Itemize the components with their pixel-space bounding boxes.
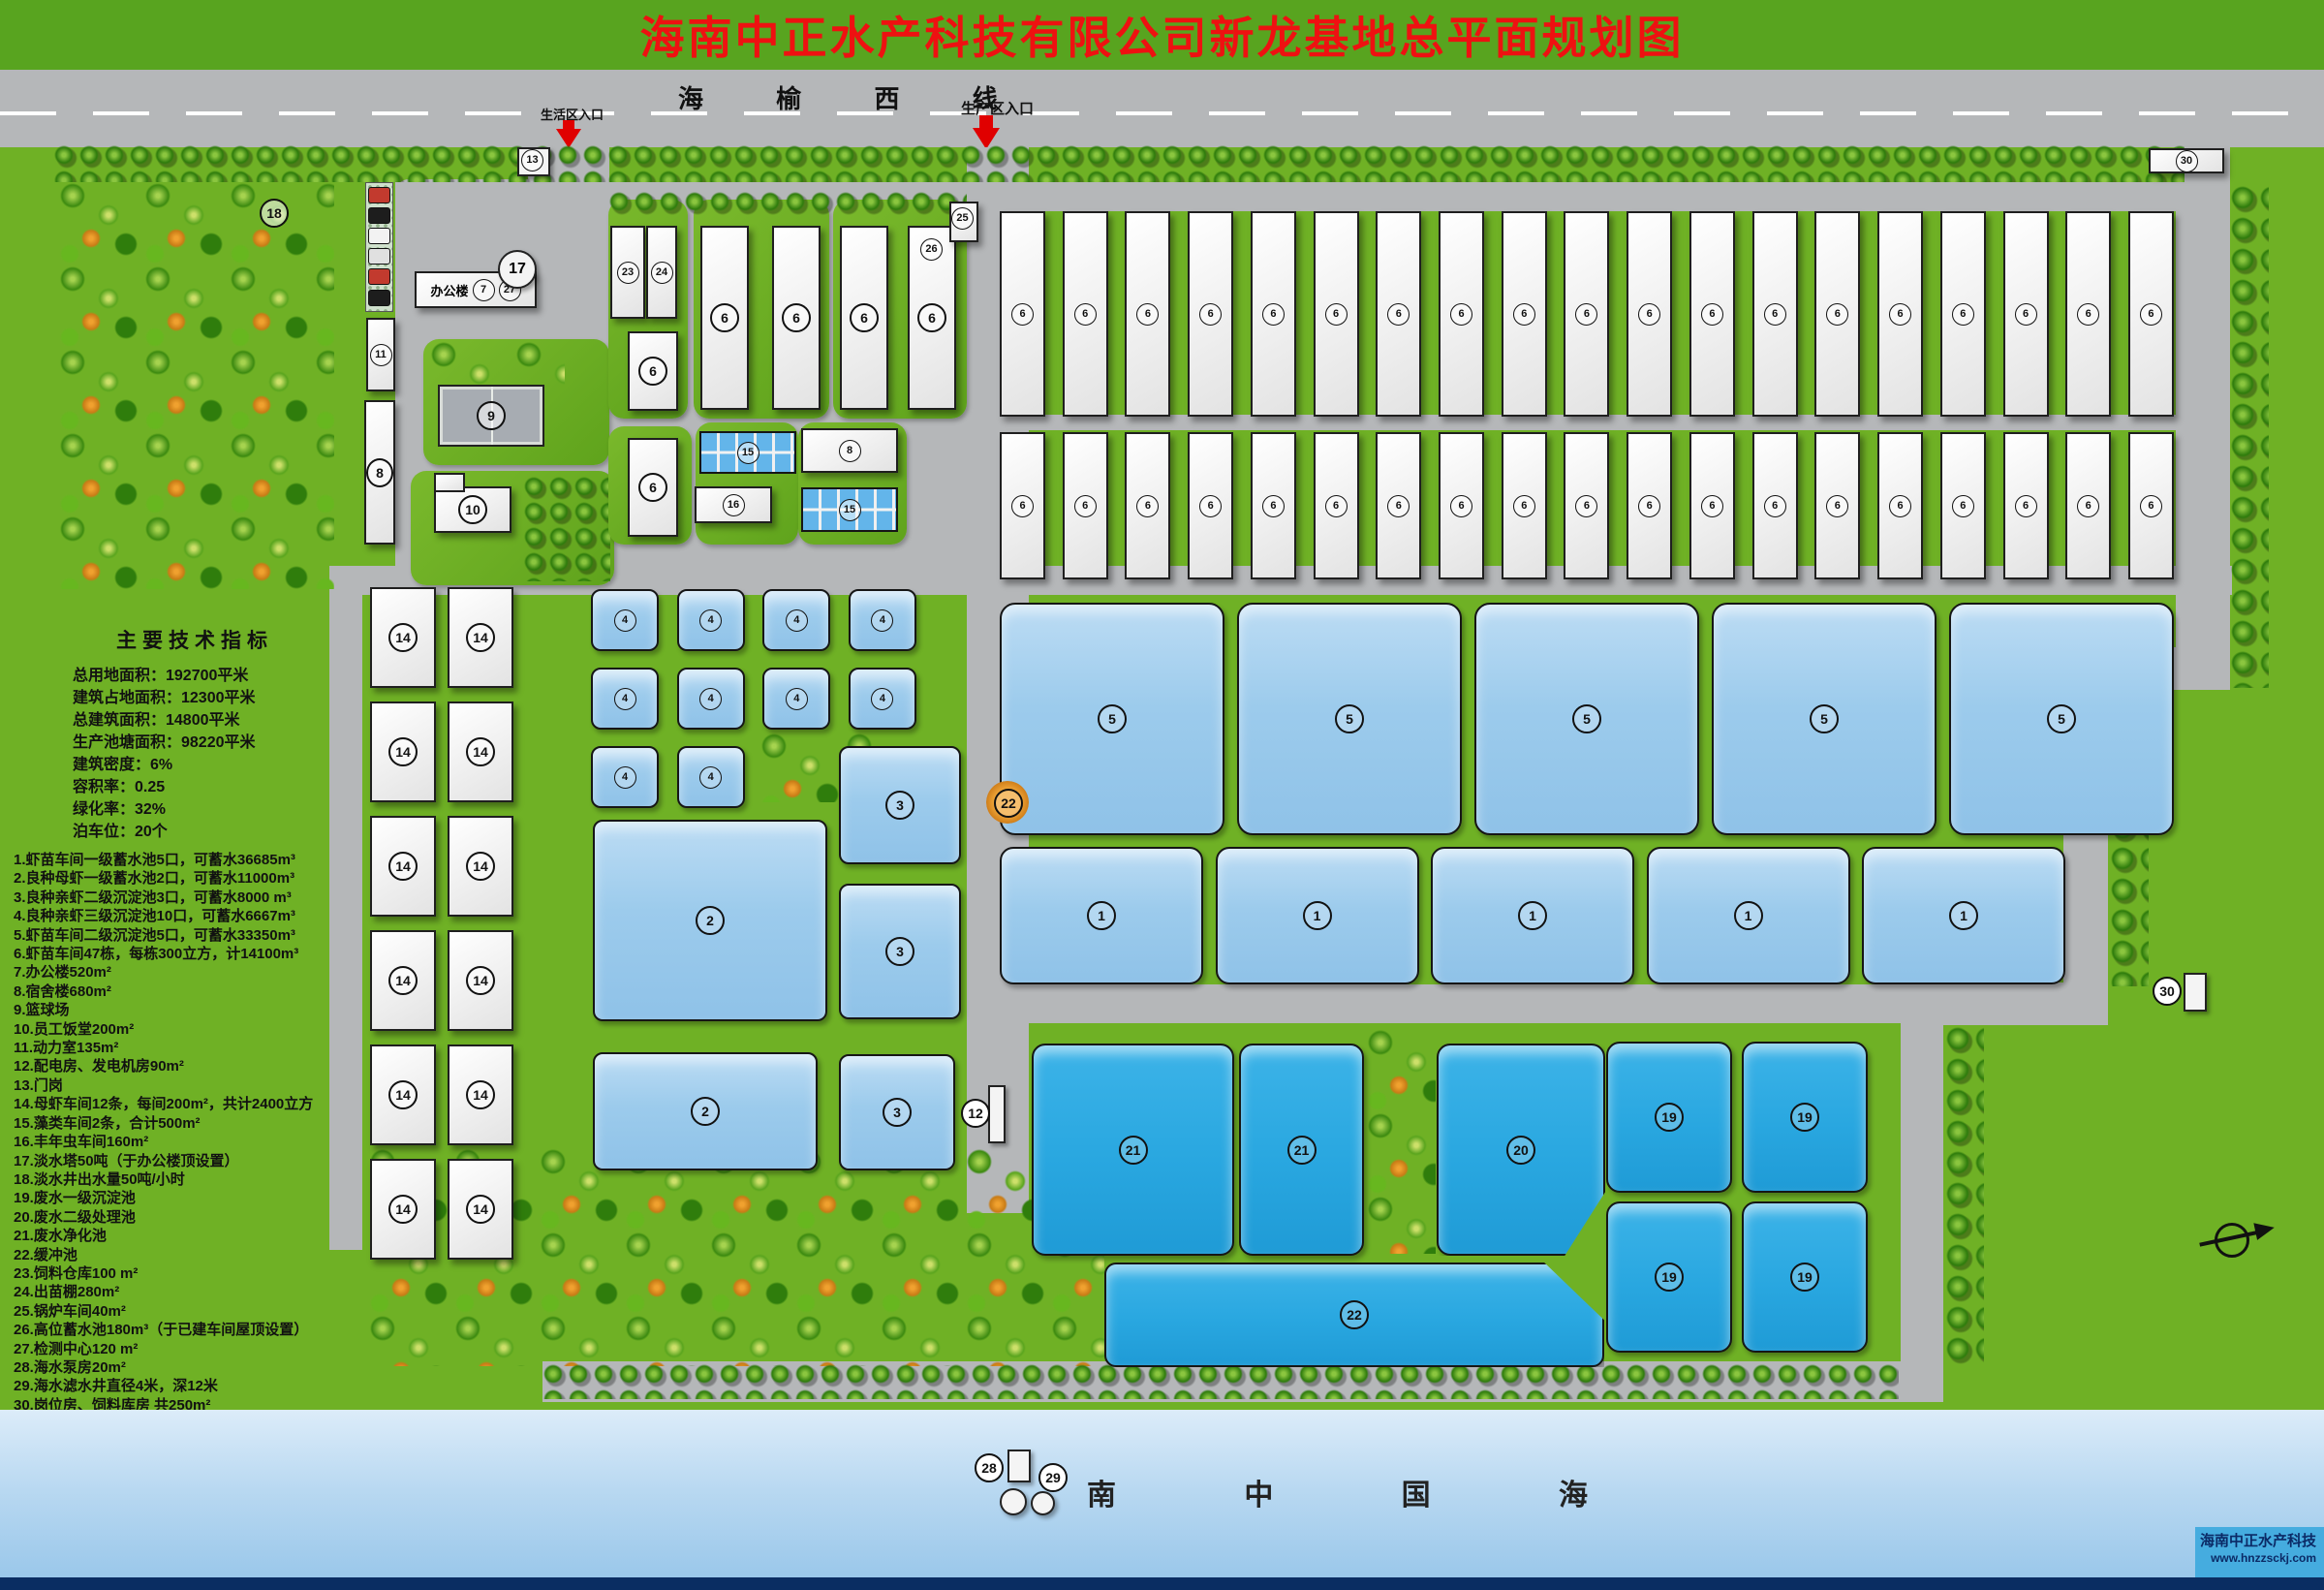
text-line: 泊车位：20个	[73, 821, 256, 843]
workshop-marker: 6	[1325, 495, 1348, 517]
pond-marker: 1	[1949, 901, 1978, 930]
pond-marker: 19	[1790, 1103, 1819, 1132]
workshop-label: 6	[1772, 501, 1778, 512]
workshop-marker: 6	[638, 473, 667, 502]
indicators-block: 总用地面积：192700平米建筑占地面积：12300平米总建筑面积：14800平…	[73, 665, 256, 843]
pond-marker: 4	[614, 688, 636, 710]
elevated-tank-label: 26	[925, 244, 937, 255]
pond-marker: 3	[885, 937, 914, 966]
workshop-label: 6	[792, 311, 800, 325]
water-tower: 17	[498, 250, 537, 289]
workshop-6f: 6	[628, 438, 678, 537]
text-line: 9.篮球场	[14, 1001, 313, 1019]
settling-pond-4: 4	[762, 668, 830, 730]
workshop-marker: 6	[1575, 303, 1597, 326]
workshop-marker: 6	[1325, 303, 1348, 326]
gate-label: 13	[526, 155, 538, 166]
workshop-label: 6	[1082, 309, 1088, 320]
settling-pond-4: 4	[677, 589, 745, 651]
highway-centerline	[0, 111, 2324, 115]
workshop-building: 6	[2128, 432, 2174, 579]
production-entrance-label: 生产区入口	[961, 98, 1034, 118]
workshop-marker: 6	[638, 357, 667, 386]
text-line: 11.动力室135m²	[14, 1039, 313, 1057]
post-house: 30	[2149, 148, 2224, 173]
mother-shrimp-label: 14	[473, 974, 488, 987]
workshop-marker: 6	[1764, 303, 1786, 326]
text-line: 8.宿舍楼680m²	[14, 982, 313, 1001]
workshop-marker: 6	[1136, 495, 1159, 517]
text-line: 28.海水泵房20m²	[14, 1358, 313, 1377]
workshop-marker: 6	[1826, 303, 1848, 326]
algae-workshop-1: 15	[699, 431, 796, 474]
basketball-court: 9	[438, 385, 544, 447]
workshop-label: 6	[2086, 501, 2092, 512]
workshop-label: 6	[1898, 309, 1904, 320]
reservoir-pond-1: 1	[1000, 847, 1203, 984]
workshop-building: 6	[1752, 211, 1798, 417]
reservoir-col-2: 2 2	[593, 820, 827, 1170]
text-line: 2.良种母虾一级蓄水池2口，可蓄水11000m³	[14, 869, 313, 888]
pond-label: 1	[1098, 909, 1105, 922]
text-line: 生产池塘面积：98220平米	[73, 732, 256, 754]
mother-shrimp-marker: 14	[388, 1080, 418, 1109]
workshop-building: 6	[1814, 211, 1860, 417]
mother-shrimp-block: 14 14 14 14 14 14 14 14 14 14 14 14	[370, 587, 510, 1260]
workshop-building: 6	[1125, 211, 1170, 417]
mother-shrimp-marker: 14	[388, 852, 418, 881]
workshop-building: 6	[1502, 211, 1547, 417]
generator-label: 12	[968, 1107, 983, 1120]
workshop-marker: 6	[2077, 495, 2099, 517]
text-line: 绿化率：32%	[73, 798, 256, 821]
pond-label: 5	[1346, 712, 1353, 726]
mother-shrimp-marker: 14	[466, 966, 495, 995]
settling-pond-19: 19	[1742, 1042, 1868, 1193]
pond-label: 3	[893, 1106, 901, 1119]
algae-marker: 15	[737, 442, 759, 464]
pond-label: 20	[1513, 1143, 1529, 1157]
mother-shrimp-label: 14	[473, 859, 488, 873]
mother-shrimp-building: 14	[370, 587, 436, 688]
workshop-label: 6	[2086, 309, 2092, 320]
workshop-marker: 6	[1575, 495, 1597, 517]
workshop-marker: 6	[1764, 495, 1786, 517]
pond-marker: 4	[699, 766, 722, 789]
workshop-building: 6	[1627, 211, 1672, 417]
parking-strip	[365, 182, 393, 312]
dormitory-building: 8	[364, 400, 395, 545]
east-road-3	[1901, 982, 1943, 1402]
workshop-marker: 6	[850, 303, 879, 332]
east-road-1	[2176, 147, 2230, 690]
mother-shrimp-label: 14	[395, 631, 411, 644]
mother-shrimp-building: 14	[448, 816, 513, 917]
text-line: 29.海水滤水井直径4米，深12米	[14, 1377, 313, 1395]
workshop-label: 6	[1898, 501, 1904, 512]
pond-marker: 4	[699, 609, 722, 632]
text-line: 5.虾苗车间二级沉淀池5口，可蓄水33350m³	[14, 926, 313, 945]
pond-label: 19	[1797, 1270, 1813, 1284]
page-title: 海南中正水产科技有限公司新龙基地总平面规划图	[0, 3, 2324, 67]
pond-label: 4	[793, 615, 799, 626]
pond-marker: 3	[885, 791, 914, 820]
mother-shrimp-marker: 14	[466, 623, 495, 652]
workshop-label: 6	[1270, 309, 1276, 320]
mother-shrimp-label: 14	[395, 974, 411, 987]
workshop-6b: 6	[700, 226, 749, 410]
workshop-building: 6	[2003, 432, 2049, 579]
pond-label: 21	[1126, 1143, 1141, 1157]
text-line: 容积率：0.25	[73, 776, 256, 798]
workshop-marker: 6	[2015, 303, 2037, 326]
workshop-building: 6	[1439, 211, 1484, 417]
treatment-pond-20: 20	[1437, 1044, 1605, 1256]
water-tower-label: 17	[509, 261, 526, 278]
pond-marker: 3	[883, 1098, 912, 1127]
workshop-marker: 6	[2015, 495, 2037, 517]
feed-store-marker: 30	[2153, 977, 2182, 1006]
mother-shrimp-label: 14	[395, 745, 411, 759]
workshop-building: 6	[1314, 432, 1359, 579]
workshop-label: 6	[1960, 309, 1966, 320]
workshop-building: 6	[1814, 432, 1860, 579]
text-line: 12.配电房、发电机房90m²	[14, 1057, 313, 1076]
workshop-label: 6	[1270, 501, 1276, 512]
text-line: 14.母虾车间12条，每间200m²，共计2400立方	[14, 1095, 313, 1113]
pond-marker: 5	[1572, 704, 1601, 733]
canteen-island-trees	[523, 477, 610, 581]
car-white	[368, 228, 390, 244]
pond-marker: 22	[1340, 1300, 1369, 1329]
settling-pond-4: 4	[762, 589, 830, 651]
mother-shrimp-marker: 14	[466, 1080, 495, 1109]
workshop-label: 6	[1521, 309, 1527, 320]
workshop-label: 6	[1584, 309, 1590, 320]
pond-marker: 5	[1335, 704, 1364, 733]
text-line: 7.办公楼520m²	[14, 963, 313, 982]
mid-island-trees	[608, 192, 967, 215]
workshop-label: 6	[928, 311, 936, 325]
dormitory-marker: 8	[366, 458, 393, 487]
mother-shrimp-building: 14	[448, 930, 513, 1031]
pond-label: 2	[706, 914, 714, 927]
workshop-label: 6	[1521, 501, 1527, 512]
workshop-row-bottom: 6 6 6 6 6 6 6 6 6 6 6 6 6 6 6 6	[1000, 432, 2174, 576]
watermark-url: www.hnzzsckj.com	[2195, 1550, 2316, 1566]
workshop-building: 6	[1376, 432, 1421, 579]
site-plan: 海南中正水产科技有限公司新龙基地总平面规划图 海 榆 西 线 生活区入口 生产区…	[0, 0, 2324, 1590]
pond-label: 4	[708, 615, 714, 626]
workshop-label: 6	[1208, 501, 1214, 512]
sea-pump-label: 28	[981, 1461, 997, 1475]
algae-marker: 15	[839, 499, 861, 521]
workshop-marker: 6	[1074, 495, 1097, 517]
reservoir-pond-2: 2	[593, 1052, 818, 1170]
sea-well-label: 29	[1045, 1471, 1061, 1484]
workshop-building: 6	[1188, 211, 1233, 417]
workshop-label: 6	[1333, 501, 1339, 512]
text-line: 4.良种亲虾三级沉淀池10口，可蓄水6667m³	[14, 907, 313, 925]
pond-label: 5	[1108, 712, 1116, 726]
settling-pond-3: 3	[839, 884, 961, 1019]
text-line: 16.丰年虫车间160m²	[14, 1133, 313, 1151]
text-line: 总用地面积：192700平米	[73, 665, 256, 687]
text-line: 25.锅炉车间40m²	[14, 1302, 313, 1321]
purification-ponds: 21 21	[1032, 1044, 1364, 1252]
settling-pond-19: 19	[1606, 1042, 1732, 1193]
boiler-label: 25	[956, 213, 968, 224]
brine-shrimp-label: 16	[728, 500, 739, 511]
workshop-marker: 6	[1952, 303, 1974, 326]
pond-marker: 4	[871, 688, 893, 710]
seedling-shed-label: 24	[656, 267, 667, 278]
settling-pond-4: 4	[591, 746, 659, 808]
pond-label: 1	[1745, 909, 1752, 922]
office-name: 办公楼	[430, 281, 468, 299]
workshop-building: 6	[1251, 432, 1296, 579]
reservoir-pond-2: 2	[593, 820, 827, 1021]
pond-marker: 5	[2047, 704, 2076, 733]
workshop-6c: 6	[772, 226, 821, 410]
workshop-building: 6	[1627, 432, 1672, 579]
first-settling-ponds: 19 19 19 19	[1606, 1042, 1868, 1353]
mother-shrimp-marker: 14	[388, 623, 418, 652]
settling-pond-5: 5	[1237, 603, 1462, 835]
text-line: 15.藻类车间2条，合计500m²	[14, 1114, 313, 1133]
workshop-building: 6	[1752, 432, 1798, 579]
settling-pond-5: 5	[1000, 603, 1224, 835]
pond-marker: 5	[1810, 704, 1839, 733]
sea-pump-marker: 28	[975, 1453, 1004, 1482]
workshop-marker: 6	[2140, 495, 2162, 517]
workshop-marker: 6	[1450, 303, 1472, 326]
generator-room	[988, 1085, 1006, 1143]
pond-label: 21	[1294, 1143, 1310, 1157]
pond-label: 4	[622, 772, 628, 783]
post-house-marker: 30	[2176, 150, 2198, 172]
pond-row-5: 5 5 5 5 5	[1000, 603, 2174, 831]
settling-pond-5: 5	[1474, 603, 1699, 835]
text-line: 17.淡水塔50吨（于办公楼顶设置）	[14, 1152, 313, 1170]
text-line: 20.废水二级处理池	[14, 1208, 313, 1227]
mother-shrimp-building: 14	[448, 587, 513, 688]
text-line: 总建筑面积：14800平米	[73, 709, 256, 732]
dormitory-2: 8	[801, 428, 898, 473]
workshop-marker: 6	[1387, 495, 1410, 517]
car-black-2	[368, 290, 390, 306]
court-marker: 9	[477, 401, 506, 430]
workshop-building: 6	[1502, 432, 1547, 579]
settling-pond-col-3: 3 3 3	[839, 746, 957, 1170]
workshop-marker: 6	[1199, 303, 1222, 326]
settling-pond-4: 4	[591, 589, 659, 651]
sea-well-1	[1000, 1488, 1027, 1515]
pond-marker: 19	[1655, 1263, 1684, 1292]
mother-shrimp-marker: 14	[388, 966, 418, 995]
pond-label: 1	[1960, 909, 1968, 922]
workshop-building: 6	[1940, 211, 1986, 417]
workshop-label: 6	[1960, 501, 1966, 512]
workshop-label: 6	[1772, 309, 1778, 320]
pond-label: 4	[622, 615, 628, 626]
workshop-marker: 6	[1262, 495, 1285, 517]
workshop-building: 6	[1188, 432, 1233, 579]
workshop-label: 6	[721, 311, 728, 325]
workshop-label: 6	[1019, 309, 1025, 320]
bottom-tree-belt	[542, 1364, 1899, 1399]
workshop-label: 6	[1835, 309, 1841, 320]
settling-pond-3: 3	[839, 746, 961, 864]
workshop-marker: 6	[1513, 495, 1535, 517]
canteen-marker: 10	[458, 495, 487, 524]
workshop-building: 6	[1125, 432, 1170, 579]
algae-label: 15	[844, 505, 855, 515]
workshop-marker: 6	[2077, 303, 2099, 326]
pond-label: 22	[1347, 1308, 1362, 1322]
settling-pond-3: 3	[839, 1054, 955, 1170]
pond-label: 5	[1583, 712, 1591, 726]
mother-shrimp-building: 14	[370, 701, 436, 802]
workshop-building: 6	[1063, 432, 1108, 579]
settling-pond-19: 19	[1606, 1201, 1732, 1353]
workshop-label: 6	[2023, 309, 2029, 320]
workshop-marker: 6	[1889, 303, 1911, 326]
mother-shrimp-marker: 14	[388, 1195, 418, 1224]
workshop-label: 6	[1709, 501, 1715, 512]
pond-row-1: 1 1 1 1 1	[1000, 847, 2065, 981]
workshop-marker: 6	[1136, 303, 1159, 326]
text-line: 26.高位蓄水池180m³（于已建车间屋顶设置）	[14, 1321, 313, 1339]
workshop-marker: 6	[710, 303, 739, 332]
power-room-label: 11	[375, 350, 387, 360]
pond-marker: 4	[699, 688, 722, 710]
car-red	[368, 187, 390, 203]
sea-well-2	[1031, 1491, 1055, 1515]
north-arrow-icon	[2180, 1209, 2286, 1267]
pond-label: 5	[1820, 712, 1828, 726]
workshop-marker: 6	[1513, 303, 1535, 326]
mother-shrimp-label: 14	[473, 1088, 488, 1102]
workshop-label: 6	[1584, 501, 1590, 512]
text-line: 18.淡水井出水量50吨/小时	[14, 1170, 313, 1189]
feed-store-label: 30	[2159, 984, 2175, 998]
text-line: 6.虾苗车间47栋，每栋300立方，计14100m³	[14, 945, 313, 963]
text-line: 建筑占地面积：12300平米	[73, 687, 256, 709]
workshop-label: 6	[1647, 309, 1653, 320]
canteen-building: 10	[434, 486, 511, 533]
purification-pond-21: 21	[1239, 1044, 1364, 1256]
pond-marker: 1	[1303, 901, 1332, 930]
pond-marker: 2	[696, 906, 725, 935]
settling-pond-5: 5	[1712, 603, 1937, 835]
workshop-label: 6	[1709, 309, 1715, 320]
pond-label: 4	[880, 615, 885, 626]
pond-label: 19	[1797, 1110, 1813, 1124]
feed-store	[2184, 973, 2207, 1012]
seedling-shed-marker: 24	[651, 262, 673, 284]
workshop-label: 6	[1396, 309, 1402, 320]
workshop-marker: 6	[1638, 303, 1660, 326]
buffer-pond-22: 22	[1104, 1263, 1604, 1367]
settling-pond-4: 4	[677, 746, 745, 808]
legend-block: 1.虾苗车间一级蓄水池5口，可蓄水36685m³2.良种母虾一级蓄水池2口，可蓄…	[14, 851, 313, 1415]
sea-bottom-bar	[0, 1577, 2324, 1590]
top-tree-belt	[53, 145, 2185, 182]
park-label: 18	[266, 206, 282, 220]
mother-shrimp-label: 14	[473, 1202, 488, 1216]
watermark-company: 海南中正水产科技	[2195, 1533, 2316, 1550]
workshop-marker: 6	[1074, 303, 1097, 326]
pond-label: 5	[2058, 712, 2065, 726]
workshop-6d: 6	[840, 226, 888, 410]
pond-label: 4	[708, 772, 714, 783]
mother-shrimp-building: 14	[448, 1044, 513, 1145]
sea-name: 南 中 国 海	[1087, 1471, 1648, 1513]
purification-pond-21: 21	[1032, 1044, 1234, 1256]
power-room-marker: 11	[370, 344, 392, 366]
workshop-building: 6	[1689, 432, 1735, 579]
west-park-forest	[58, 182, 334, 589]
indicators-title: 主要技术指标	[116, 625, 273, 654]
text-line: 建筑密度：6%	[73, 754, 256, 776]
reservoir-pond-1: 1	[1862, 847, 2065, 984]
watermark: 海南中正水产科技 www.hnzzsckj.com	[2195, 1527, 2324, 1577]
settling-pond-5: 5	[1949, 603, 2174, 835]
pond-label: 19	[1661, 1110, 1677, 1124]
workshop-marker: 6	[2140, 303, 2162, 326]
feed-warehouse-label: 23	[622, 267, 634, 278]
text-line: 3.良种亲虾二级沉淀池3口，可蓄水8000 m³	[14, 889, 313, 907]
mother-shrimp-marker: 14	[466, 852, 495, 881]
brine-shrimp-workshop: 16	[695, 486, 772, 523]
workshop-label: 6	[2148, 501, 2154, 512]
buffer-junction-label: 22	[1001, 796, 1016, 810]
pond-marker: 4	[786, 688, 808, 710]
workshop-marker: 6	[1638, 495, 1660, 517]
boiler-marker: 25	[951, 207, 974, 230]
dormitory-2-marker: 8	[839, 440, 861, 462]
pond-label: 4	[793, 694, 799, 704]
workshop-building: 6	[1940, 432, 1986, 579]
workshop-building: 6	[1376, 211, 1421, 417]
pond-marker: 5	[1098, 704, 1127, 733]
workshop-marker: 6	[1701, 495, 1723, 517]
workshop-marker: 6	[1889, 495, 1911, 517]
pond-label: 3	[896, 945, 904, 958]
text-line: 21.废水净化池	[14, 1227, 313, 1245]
court-label: 9	[487, 409, 495, 422]
workshop-label: 6	[1458, 309, 1464, 320]
dormitory-2-label: 8	[847, 446, 852, 456]
workshop-building: 6	[1000, 432, 1045, 579]
office-label: 7	[480, 285, 486, 296]
pond-label: 1	[1529, 909, 1536, 922]
workshop-marker: 6	[782, 303, 811, 332]
workshop-building: 6	[2128, 211, 2174, 417]
seedling-shed: 24	[646, 226, 677, 319]
settling-pond-4: 4	[591, 668, 659, 730]
pond-label: 1	[1314, 909, 1321, 922]
workshop-marker: 6	[1952, 495, 1974, 517]
east-tree-belt-3	[1945, 1025, 1984, 1364]
text-line: 10.员工饭堂200m²	[14, 1020, 313, 1039]
buffer-junction-marker: 22	[994, 789, 1023, 818]
pond-label: 3	[896, 798, 904, 812]
workshop-marker: 6	[1387, 303, 1410, 326]
mother-shrimp-building: 14	[370, 816, 436, 917]
pond-marker: 19	[1655, 1103, 1684, 1132]
